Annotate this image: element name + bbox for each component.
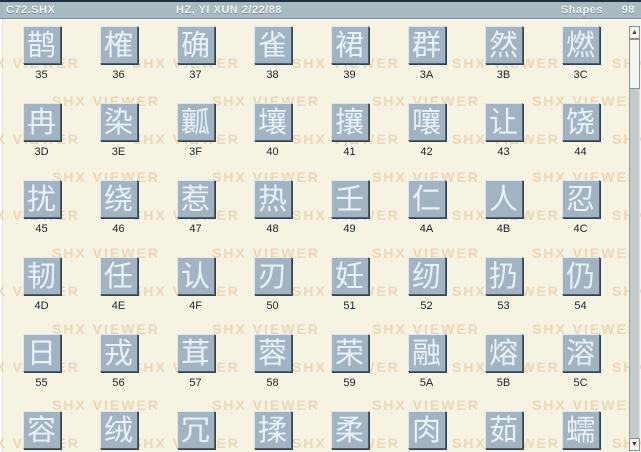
glyph-tile[interactable]: 仁 bbox=[408, 180, 446, 218]
glyph-character: 戎 bbox=[104, 335, 133, 371]
glyph-tile[interactable]: 茹 bbox=[485, 411, 523, 449]
glyph-cell: 染 3E bbox=[80, 103, 157, 180]
shapes-count: 98 bbox=[622, 4, 635, 16]
glyph-character: 热 bbox=[258, 181, 287, 217]
glyph-code-label: 49 bbox=[343, 223, 355, 235]
scroll-up-icon: ▲ bbox=[631, 29, 638, 36]
glyph-character: 仁 bbox=[412, 181, 441, 217]
glyph-code-label: 45 bbox=[35, 223, 47, 235]
vertical-scrollbar[interactable]: ▲ ▼ bbox=[629, 26, 640, 451]
glyph-tile[interactable]: 韧 bbox=[23, 257, 61, 295]
scroll-down-icon: ▼ bbox=[631, 441, 638, 448]
glyph-cell: 溶 5C bbox=[542, 334, 619, 411]
glyph-code-label: 4C bbox=[573, 223, 587, 235]
glyph-tile[interactable]: 燃 bbox=[562, 26, 600, 64]
glyph-code-label: 52 bbox=[420, 300, 432, 312]
glyph-cell: 榷 36 bbox=[80, 26, 157, 103]
glyph-code-label: 3D bbox=[34, 146, 48, 158]
glyph-cell: 仁 4A bbox=[388, 180, 465, 257]
glyph-character: 揉 bbox=[258, 412, 287, 448]
glyph-cell: 扔 53 bbox=[465, 257, 542, 334]
glyph-tile[interactable]: 然 bbox=[485, 26, 523, 64]
glyph-tile[interactable]: 揉 bbox=[254, 411, 292, 449]
glyph-cell: 嚷 42 bbox=[388, 103, 465, 180]
glyph-tile[interactable]: 饶 bbox=[562, 103, 600, 141]
glyph-cell: 攘 41 bbox=[311, 103, 388, 180]
glyph-code-label: 36 bbox=[112, 69, 124, 81]
glyph-code-label: 55 bbox=[35, 377, 47, 389]
glyph-tile[interactable]: 让 bbox=[485, 103, 523, 141]
glyph-tile[interactable]: 人 bbox=[485, 180, 523, 218]
glyph-cell: 熔 5B bbox=[465, 334, 542, 411]
glyph-code-label: 54 bbox=[574, 300, 586, 312]
glyph-cell: 鹊 35 bbox=[3, 26, 80, 103]
title-bar: C72.SHX HZ, YI XUN 2/22/88 Shapes 98 bbox=[0, 0, 641, 19]
glyph-cell: 刃 50 bbox=[234, 257, 311, 334]
glyph-character: 人 bbox=[489, 181, 518, 217]
glyph-code-label: 57 bbox=[189, 377, 201, 389]
glyph-cell: 雀 38 bbox=[234, 26, 311, 103]
glyph-tile[interactable]: 绒 bbox=[100, 411, 138, 449]
glyph-cell: 戎 56 bbox=[80, 334, 157, 411]
glyph-tile[interactable]: 扰 bbox=[23, 180, 61, 218]
glyph-cell: 肉 bbox=[388, 411, 465, 452]
file-name: C72.SHX bbox=[6, 4, 55, 16]
glyph-code-label: 3A bbox=[420, 69, 433, 81]
glyph-cell: 仍 54 bbox=[542, 257, 619, 334]
glyph-character: 绕 bbox=[104, 181, 133, 217]
glyph-code-label: 44 bbox=[574, 146, 586, 158]
glyph-tile[interactable]: 蠕 bbox=[562, 411, 600, 449]
glyph-character: 任 bbox=[104, 258, 133, 294]
glyph-code-label: 59 bbox=[343, 377, 355, 389]
glyph-code-label: 37 bbox=[189, 69, 201, 81]
glyph-cell: 然 3B bbox=[465, 26, 542, 103]
glyph-tile[interactable]: 妊 bbox=[331, 257, 369, 295]
glyph-character: 嚷 bbox=[412, 104, 441, 140]
scroll-up-button[interactable]: ▲ bbox=[629, 26, 640, 39]
glyph-code-label: 47 bbox=[189, 223, 201, 235]
glyph-cell: 绒 bbox=[80, 411, 157, 452]
shapes-label: Shapes bbox=[561, 4, 603, 16]
glyph-code-label: 4D bbox=[34, 300, 48, 312]
glyph-cell: 瓤 3F bbox=[157, 103, 234, 180]
glyph-cell: 冉 3D bbox=[3, 103, 80, 180]
glyph-cell: 妊 51 bbox=[311, 257, 388, 334]
glyph-character: 忍 bbox=[566, 181, 595, 217]
glyph-code-label: 53 bbox=[497, 300, 509, 312]
glyph-code-label: 35 bbox=[35, 69, 47, 81]
glyph-cell: 冗 bbox=[157, 411, 234, 452]
glyph-tile[interactable]: 刃 bbox=[254, 257, 292, 295]
glyph-cell: 蠕 bbox=[542, 411, 619, 452]
glyph-tile[interactable]: 染 bbox=[100, 103, 138, 141]
glyph-tile[interactable]: 认 bbox=[177, 257, 215, 295]
glyph-character: 饶 bbox=[566, 104, 595, 140]
glyph-character: 燃 bbox=[566, 27, 595, 63]
glyph-tile[interactable]: 戎 bbox=[100, 334, 138, 372]
glyph-character: 刃 bbox=[258, 258, 287, 294]
glyph-character: 鹊 bbox=[27, 27, 56, 63]
glyph-character: 绒 bbox=[104, 412, 133, 448]
glyph-code-label: 3F bbox=[189, 146, 202, 158]
glyph-code-label: 5A bbox=[420, 377, 433, 389]
glyph-tile[interactable]: 荣 bbox=[331, 334, 369, 372]
glyph-cell: 惹 47 bbox=[157, 180, 234, 257]
glyph-character: 认 bbox=[181, 258, 210, 294]
font-description: HZ, YI XUN 2/22/88 bbox=[176, 4, 282, 16]
scrollbar-thumb[interactable] bbox=[629, 39, 640, 89]
glyph-cell: 扰 45 bbox=[3, 180, 80, 257]
glyph-cell: 容 bbox=[3, 411, 80, 452]
glyph-tile[interactable]: 柔 bbox=[331, 411, 369, 449]
glyph-tile[interactable]: 冗 bbox=[177, 411, 215, 449]
glyph-tile[interactable]: 纫 bbox=[408, 257, 446, 295]
glyph-tile[interactable]: 壤 bbox=[254, 103, 292, 141]
glyph-cell: 群 3A bbox=[388, 26, 465, 103]
glyph-cell: 韧 4D bbox=[3, 257, 80, 334]
glyph-code-label: 3C bbox=[573, 69, 587, 81]
glyph-character: 蠕 bbox=[566, 412, 595, 448]
glyph-code-label: 50 bbox=[266, 300, 278, 312]
glyph-character: 肉 bbox=[412, 412, 441, 448]
glyph-cell: 让 43 bbox=[465, 103, 542, 180]
glyph-code-label: 4B bbox=[497, 223, 510, 235]
glyph-tile[interactable]: 熔 bbox=[485, 334, 523, 372]
glyph-code-label: 41 bbox=[343, 146, 355, 158]
glyph-character: 蓉 bbox=[258, 335, 287, 371]
glyph-code-label: 5C bbox=[573, 377, 587, 389]
glyph-tile[interactable]: 惹 bbox=[177, 180, 215, 218]
glyph-character: 茸 bbox=[181, 335, 210, 371]
glyph-tile[interactable]: 融 bbox=[408, 334, 446, 372]
glyph-character: 让 bbox=[489, 104, 518, 140]
glyph-character: 茹 bbox=[489, 412, 518, 448]
scrollbar-track[interactable] bbox=[629, 39, 640, 438]
glyph-character: 柔 bbox=[335, 412, 364, 448]
glyph-code-label: 56 bbox=[112, 377, 124, 389]
glyph-grid: 鹊 35 榷 36 确 37 雀 38 裙 39 群 3A 然 bbox=[0, 17, 627, 452]
glyph-tile[interactable]: 壬 bbox=[331, 180, 369, 218]
glyph-character: 壤 bbox=[258, 104, 287, 140]
glyph-cell: 蓉 58 bbox=[234, 334, 311, 411]
glyph-code-label: 40 bbox=[266, 146, 278, 158]
glyph-character: 熔 bbox=[489, 335, 518, 371]
glyph-tile[interactable]: 日 bbox=[23, 334, 61, 372]
glyph-tile[interactable]: 肉 bbox=[408, 411, 446, 449]
glyph-cell: 确 37 bbox=[157, 26, 234, 103]
glyph-character: 冗 bbox=[181, 412, 210, 448]
glyph-code-label: 4F bbox=[189, 300, 202, 312]
glyph-code-label: 3B bbox=[497, 69, 510, 81]
glyph-character: 染 bbox=[104, 104, 133, 140]
glyph-code-label: 39 bbox=[343, 69, 355, 81]
glyph-code-label: 4E bbox=[112, 300, 125, 312]
glyph-tile[interactable]: 榷 bbox=[100, 26, 138, 64]
glyph-cell: 燃 3C bbox=[542, 26, 619, 103]
glyph-tile[interactable]: 仍 bbox=[562, 257, 600, 295]
glyph-character: 裙 bbox=[335, 27, 364, 63]
glyph-character: 冉 bbox=[27, 104, 56, 140]
glyph-character: 瓤 bbox=[181, 104, 210, 140]
glyph-tile[interactable]: 扔 bbox=[485, 257, 523, 295]
glyph-tile[interactable]: 溶 bbox=[562, 334, 600, 372]
glyph-tile[interactable]: 忍 bbox=[562, 180, 600, 218]
glyph-cell: 壬 49 bbox=[311, 180, 388, 257]
glyph-character: 惹 bbox=[181, 181, 210, 217]
glyph-tile[interactable]: 雀 bbox=[254, 26, 292, 64]
glyph-character: 群 bbox=[412, 27, 441, 63]
glyph-cell: 人 4B bbox=[465, 180, 542, 257]
glyph-code-label: 42 bbox=[420, 146, 432, 158]
glyph-code-label: 48 bbox=[266, 223, 278, 235]
glyph-tile[interactable]: 绕 bbox=[100, 180, 138, 218]
glyph-character: 壬 bbox=[335, 181, 364, 217]
glyph-code-label: 58 bbox=[266, 377, 278, 389]
glyph-code-label: 51 bbox=[343, 300, 355, 312]
glyph-cell: 壤 40 bbox=[234, 103, 311, 180]
glyph-cell: 热 48 bbox=[234, 180, 311, 257]
glyph-character: 日 bbox=[27, 335, 56, 371]
glyph-tile[interactable]: 攘 bbox=[331, 103, 369, 141]
glyph-cell: 任 4E bbox=[80, 257, 157, 334]
glyph-code-label: 43 bbox=[497, 146, 509, 158]
glyph-cell: 裙 39 bbox=[311, 26, 388, 103]
glyph-cell: 纫 52 bbox=[388, 257, 465, 334]
glyph-cell: 荣 59 bbox=[311, 334, 388, 411]
glyph-code-label: 46 bbox=[112, 223, 124, 235]
glyph-character: 妊 bbox=[335, 258, 364, 294]
glyph-character: 纫 bbox=[412, 258, 441, 294]
glyph-cell: 忍 4C bbox=[542, 180, 619, 257]
glyph-cell: 饶 44 bbox=[542, 103, 619, 180]
glyph-cell: 日 55 bbox=[3, 334, 80, 411]
glyph-cell: 柔 bbox=[311, 411, 388, 452]
glyph-character: 雀 bbox=[258, 27, 287, 63]
glyph-character: 扰 bbox=[27, 181, 56, 217]
glyph-cell: 茹 bbox=[465, 411, 542, 452]
glyph-cell: 融 5A bbox=[388, 334, 465, 411]
glyph-code-label: 5B bbox=[497, 377, 510, 389]
glyph-cell: 茸 57 bbox=[157, 334, 234, 411]
glyph-character: 溶 bbox=[566, 335, 595, 371]
glyph-character: 确 bbox=[181, 27, 210, 63]
glyph-code-label: 3E bbox=[112, 146, 125, 158]
glyph-tile[interactable]: 群 bbox=[408, 26, 446, 64]
glyph-code-label: 4A bbox=[420, 223, 433, 235]
glyph-character: 荣 bbox=[335, 335, 364, 371]
glyph-cell: 绕 46 bbox=[80, 180, 157, 257]
glyph-cell: 认 4F bbox=[157, 257, 234, 334]
glyph-character: 容 bbox=[27, 412, 56, 448]
glyph-character: 攘 bbox=[335, 104, 364, 140]
glyph-character: 榷 bbox=[104, 27, 133, 63]
glyph-tile[interactable]: 鹊 bbox=[23, 26, 61, 64]
glyph-tile[interactable]: 容 bbox=[23, 411, 61, 449]
glyph-cell: 揉 bbox=[234, 411, 311, 452]
glyph-tile[interactable]: 热 bbox=[254, 180, 292, 218]
glyph-character: 然 bbox=[489, 27, 518, 63]
glyph-tile[interactable]: 嚷 bbox=[408, 103, 446, 141]
glyph-tile[interactable]: 茸 bbox=[177, 334, 215, 372]
glyph-tile[interactable]: 冉 bbox=[23, 103, 61, 141]
glyph-character: 韧 bbox=[27, 258, 56, 294]
glyph-grid-area: SHX VIEWERSHX VIEWERSHX VIEWERSHX VIEWER… bbox=[0, 17, 641, 452]
glyph-character: 扔 bbox=[489, 258, 518, 294]
glyph-tile[interactable]: 裙 bbox=[331, 26, 369, 64]
glyph-tile[interactable]: 确 bbox=[177, 26, 215, 64]
glyph-tile[interactable]: 任 bbox=[100, 257, 138, 295]
glyph-character: 融 bbox=[412, 335, 441, 371]
glyph-character: 仍 bbox=[566, 258, 595, 294]
glyph-code-label: 38 bbox=[266, 69, 278, 81]
scroll-down-button[interactable]: ▼ bbox=[629, 438, 640, 451]
glyph-tile[interactable]: 瓤 bbox=[177, 103, 215, 141]
glyph-tile[interactable]: 蓉 bbox=[254, 334, 292, 372]
